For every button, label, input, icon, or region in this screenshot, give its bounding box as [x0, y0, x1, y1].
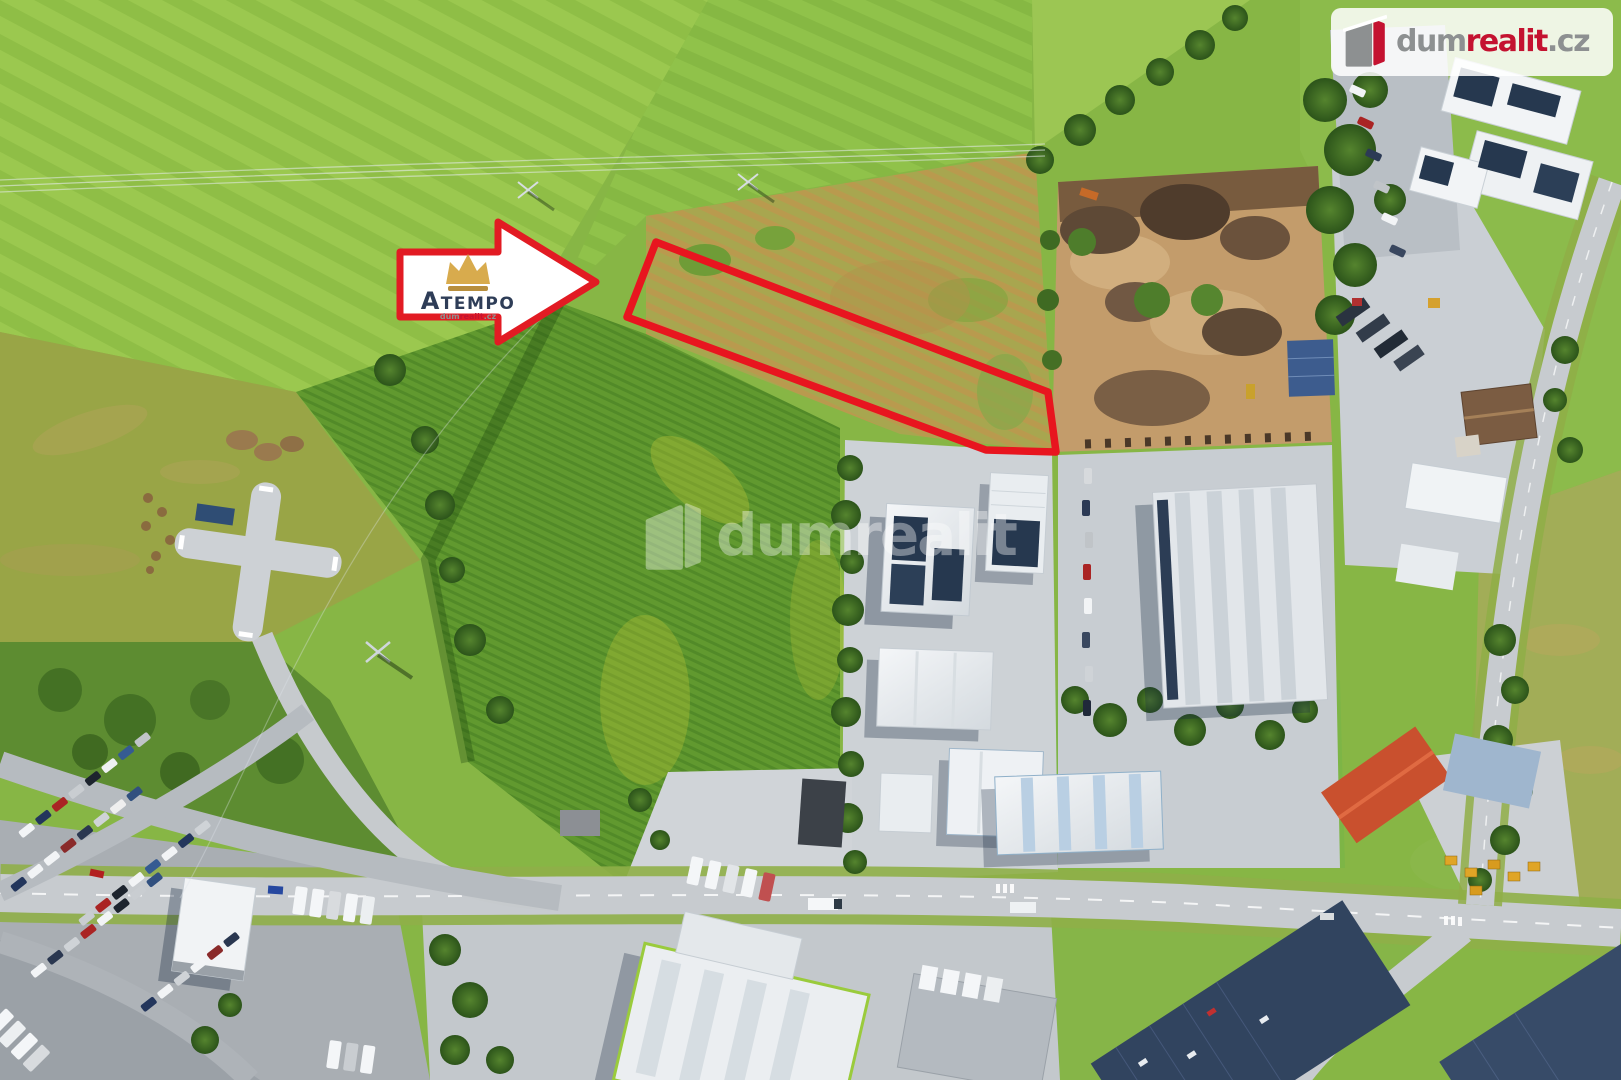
blue-solar-shed: [1287, 339, 1335, 397]
aerial-photo: Atempo dumrealit.cz dumrealit.cz dumreal…: [0, 0, 1621, 1080]
atempo-sub-label: dumrealit.cz: [440, 312, 497, 321]
center-watermark: dumrealit: [642, 496, 1016, 574]
dark-deck-corner: [1439, 937, 1621, 1080]
blue-stripe-warehouse: [981, 771, 1164, 867]
pylon: [366, 642, 412, 678]
big-gray-warehouse: [1134, 484, 1328, 721]
compost-excavation-site: [1037, 166, 1332, 452]
white-warehouse-mid: [864, 648, 993, 742]
small-hall: [879, 773, 933, 833]
dealership-building: [158, 876, 256, 993]
watermark-logo-icon: [642, 496, 704, 574]
dumrealit-logo-badge: dumrealit.cz: [1331, 8, 1613, 76]
atempo-label: Atempo: [421, 287, 516, 315]
dumrealit-logo-icon: [1343, 14, 1387, 70]
watermark-text: dumrealit: [716, 506, 1016, 564]
logo-wordmark: dumrealit.cz: [1396, 27, 1589, 57]
dark-depot-building: [798, 779, 846, 848]
